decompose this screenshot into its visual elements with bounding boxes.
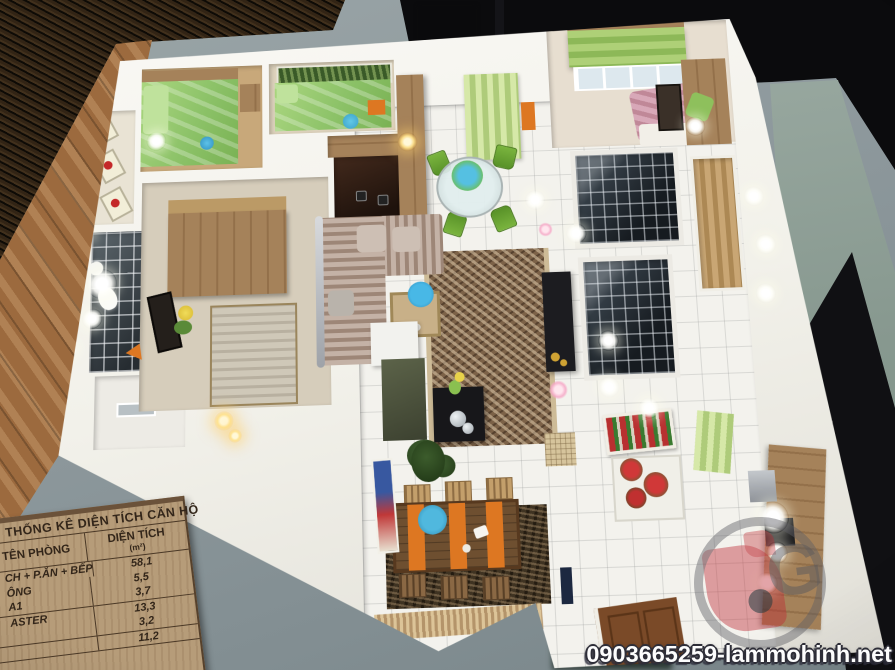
led-light	[67, 197, 87, 217]
red-flower-motif	[95, 122, 107, 133]
photo-scene: THỐNG KÊ DIỆN TÍCH CĂN HỘ TÊN PHÒNG DIỆN…	[0, 0, 895, 670]
sofa-cushion	[392, 226, 420, 252]
dining-chair	[486, 477, 514, 500]
green-roman-shade	[567, 27, 686, 68]
bed-striped	[210, 303, 298, 407]
led-light	[755, 283, 777, 303]
dining-chair	[482, 576, 510, 601]
wardrobe	[167, 210, 287, 298]
dining-chair	[399, 573, 427, 598]
orange-door-panel	[521, 102, 536, 130]
beige-mat	[544, 432, 576, 466]
green-curtain-small	[693, 410, 734, 474]
table-runner	[486, 502, 505, 568]
olive-panel	[381, 358, 427, 441]
wall-mirror	[655, 84, 683, 131]
red-flower-motif	[102, 160, 114, 172]
led-light	[755, 234, 776, 254]
led-light	[57, 339, 78, 360]
shower-cubicle-1	[570, 147, 684, 248]
bar-stool	[356, 191, 367, 202]
logo-watermark: G	[685, 508, 834, 657]
navy-shelf	[560, 567, 573, 604]
sofa-cushion	[328, 290, 354, 317]
warm-light	[214, 410, 234, 431]
sofa-cushion	[357, 224, 387, 252]
red-flower-motif	[109, 197, 121, 209]
flower-painting	[602, 408, 676, 455]
area-statistics-placard: THỐNG KÊ DIỆN TÍCH CĂN HỘ TÊN PHÒNG DIỆN…	[0, 496, 207, 670]
shower-cubicle-2	[578, 254, 681, 381]
table-runner	[448, 503, 467, 569]
pillow-2	[277, 84, 298, 103]
bar-stool	[378, 195, 389, 206]
led-light	[743, 186, 764, 206]
led-light	[74, 223, 94, 243]
dining-chair	[440, 575, 468, 600]
orange-wall-art	[368, 100, 386, 115]
warm-light	[228, 428, 242, 443]
room-name	[0, 643, 97, 661]
fridge	[748, 470, 777, 502]
logo-letter: G	[762, 531, 827, 610]
watermark-text: 0903665259-lammohinh.net	[586, 641, 892, 668]
pillow-1	[143, 85, 169, 134]
nightstand-1	[240, 84, 260, 112]
